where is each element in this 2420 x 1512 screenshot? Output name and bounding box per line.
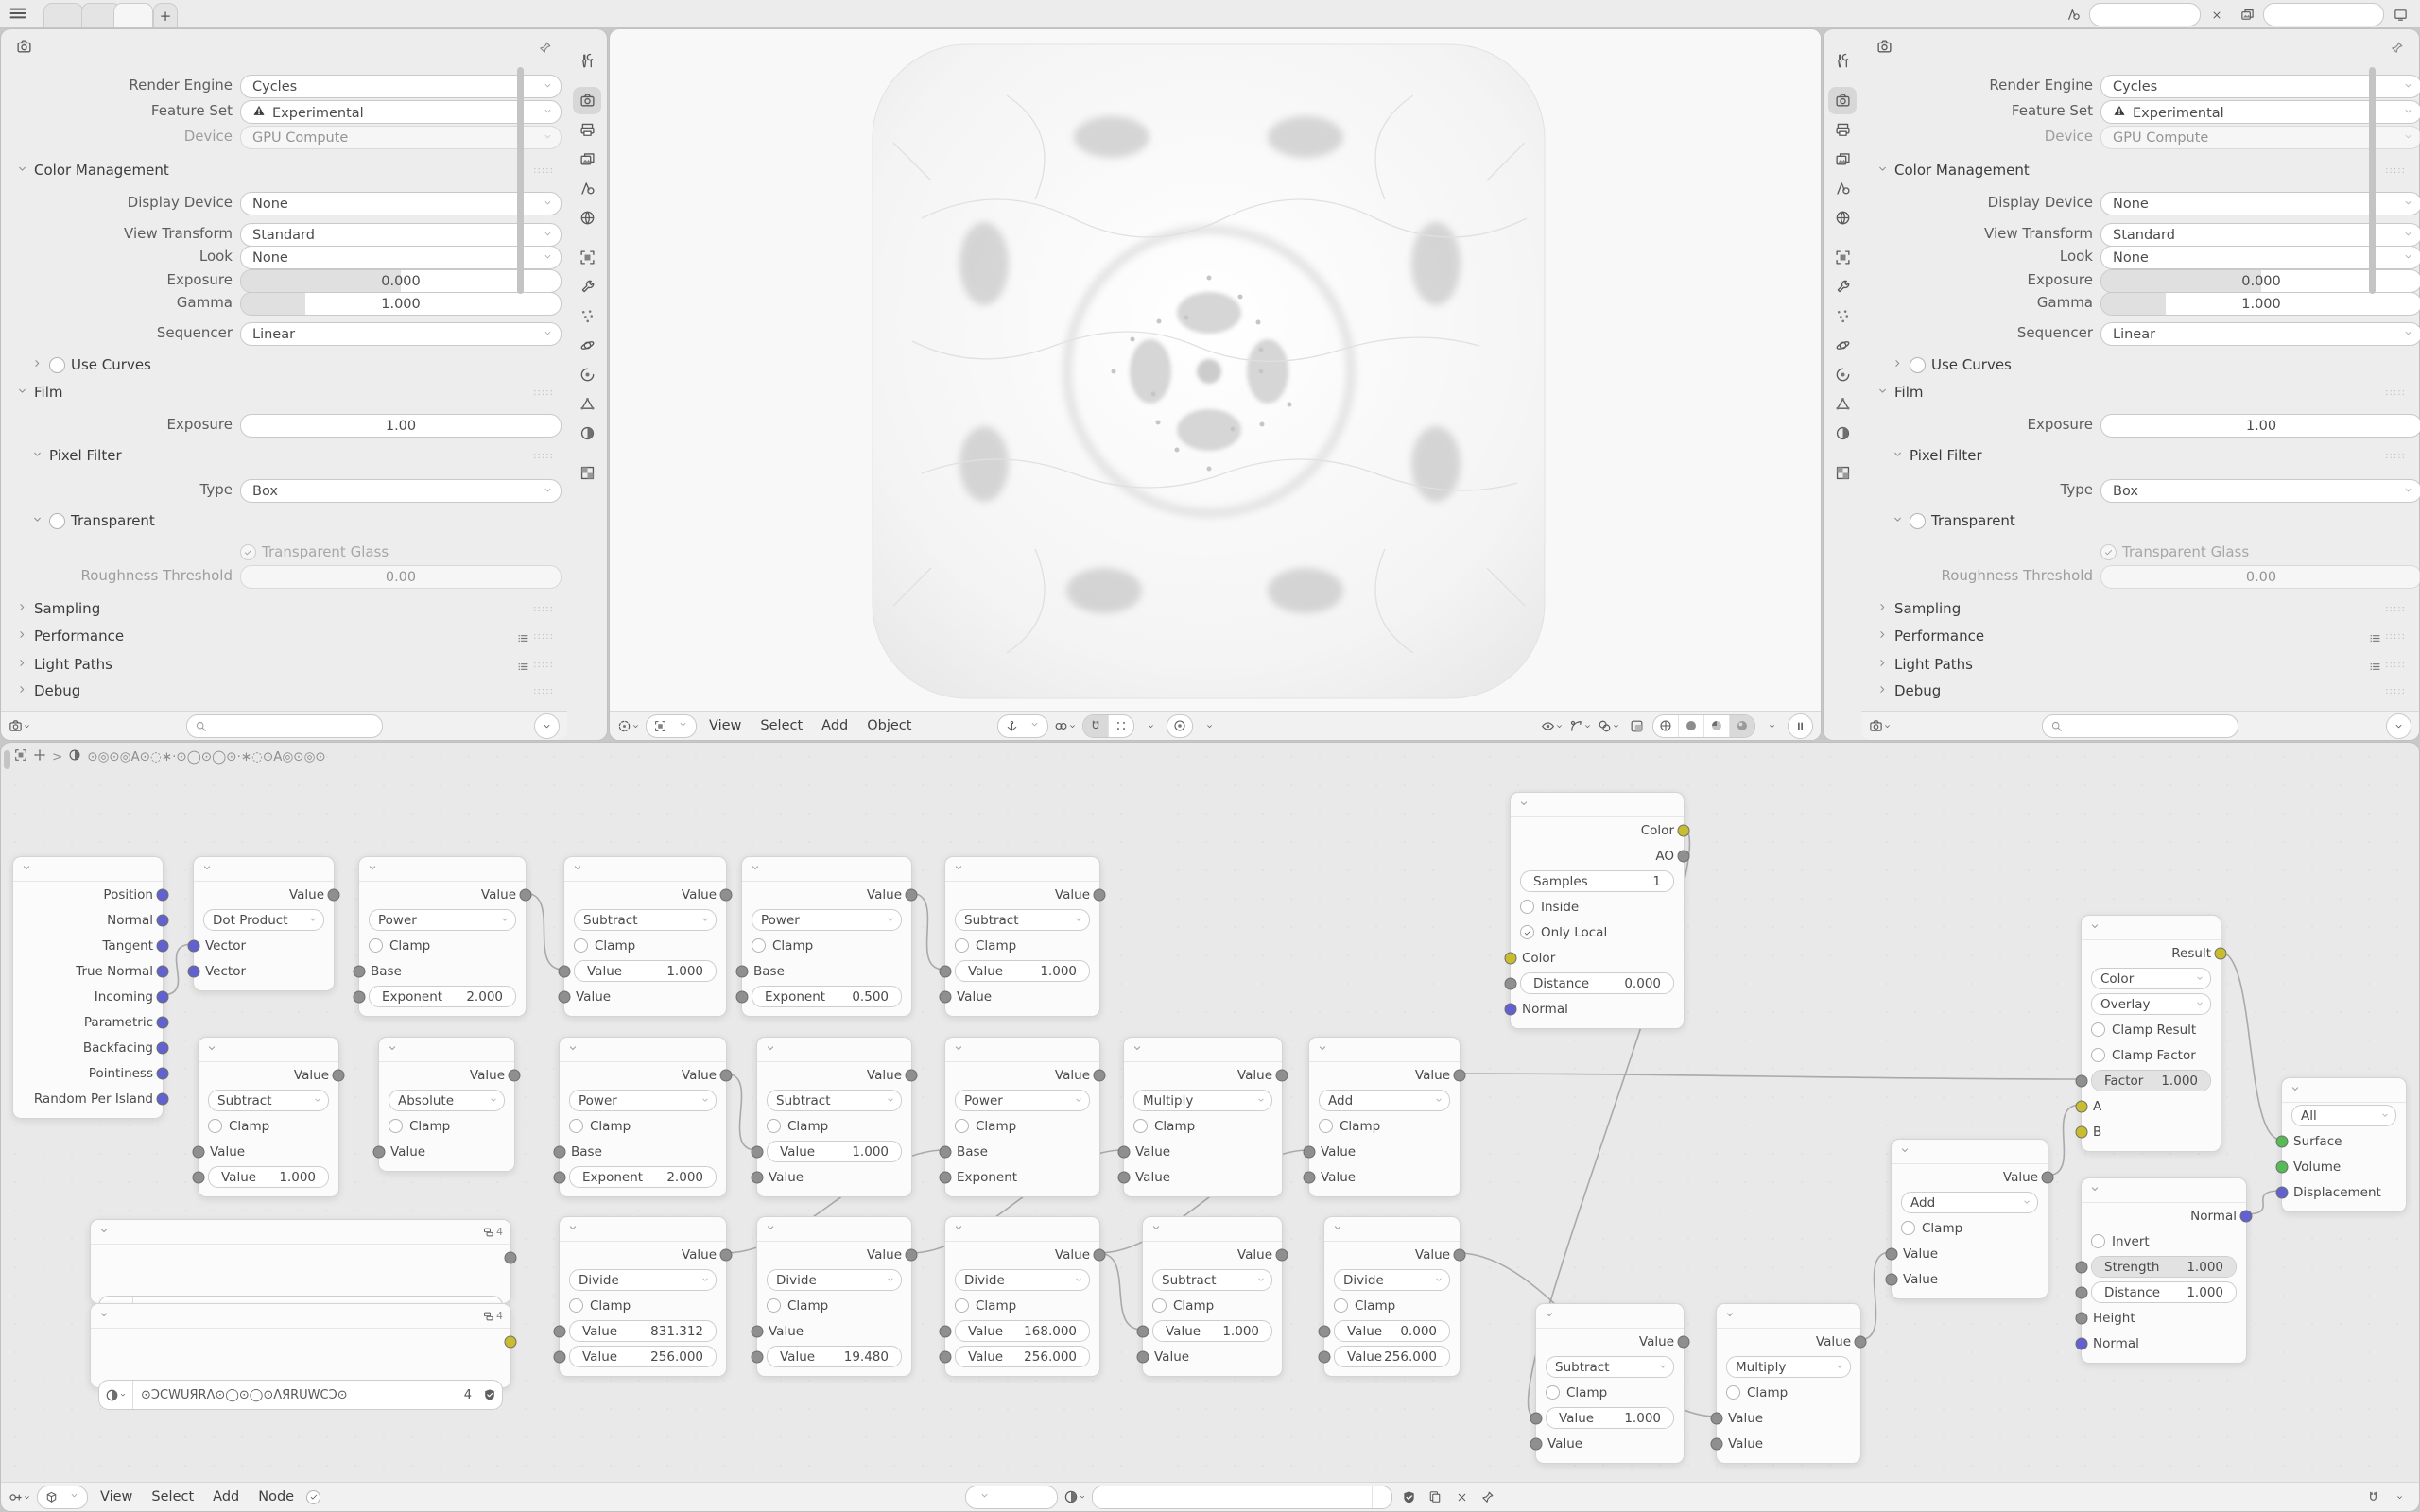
math-power-node[interactable]: ValuePowerClampBaseExponent <box>944 1037 1100 1197</box>
snap-chevron[interactable] <box>2389 1486 2410 1507</box>
exposure-field[interactable]: 0.000 <box>240 269 562 293</box>
collapse-chevron-icon[interactable] <box>953 1042 964 1057</box>
toggle-section-use-curves[interactable]: Use Curves <box>1892 356 2012 373</box>
collapse-chevron-icon[interactable] <box>1150 1222 1162 1237</box>
number-field[interactable]: Value1.000 <box>767 1141 902 1162</box>
input-socket[interactable] <box>554 1145 566 1158</box>
input-socket[interactable] <box>1137 1350 1149 1363</box>
output-socket[interactable] <box>1094 1248 1106 1261</box>
checkbox[interactable] <box>1133 1119 1148 1133</box>
output-socket[interactable] <box>2042 1171 2054 1183</box>
look-field[interactable]: None <box>240 246 562 269</box>
output-socket[interactable] <box>333 1069 345 1081</box>
use-nodes-toggle[interactable] <box>306 1490 326 1504</box>
workspace-tab[interactable] <box>43 3 83 27</box>
input-socket[interactable] <box>940 990 952 1003</box>
section-light-paths[interactable]: Light Paths <box>16 656 112 673</box>
enum-dropdown[interactable]: Power <box>752 909 902 931</box>
snap-grid-icon[interactable] <box>1109 715 1133 737</box>
input-socket[interactable] <box>2076 1125 2088 1138</box>
node-header[interactable] <box>379 1038 514 1062</box>
input-socket[interactable] <box>1319 1325 1331 1337</box>
checkbox[interactable] <box>389 1119 403 1133</box>
collapse-chevron-icon[interactable] <box>765 1042 776 1057</box>
checkbox[interactable] <box>2091 1022 2105 1037</box>
checkbox[interactable] <box>369 938 383 953</box>
input-socket[interactable] <box>736 990 749 1003</box>
enum-dropdown[interactable]: Dot Product <box>203 909 324 931</box>
material-name-field[interactable] <box>1092 1486 1392 1509</box>
view-transform-field[interactable]: Standard <box>240 223 562 247</box>
enum-dropdown[interactable]: Power <box>955 1090 1090 1111</box>
checkbox-transparent-glass[interactable]: Transparent Glass <box>240 543 389 560</box>
section-performance[interactable]: Performance <box>16 627 124 644</box>
checkbox[interactable] <box>767 1298 781 1313</box>
input-socket[interactable] <box>752 1171 764 1183</box>
math-power-node[interactable]: ValuePowerClampBaseExponent2.000 <box>358 856 527 1017</box>
output-socket[interactable] <box>1094 1069 1106 1081</box>
film-exposure-field[interactable]: 1.00 <box>2100 414 2420 438</box>
math-subtract-node[interactable]: ValueSubtractClampValue1.000Value <box>944 856 1100 1017</box>
number-field[interactable]: Value256.000 <box>569 1346 717 1367</box>
properties-tab-material[interactable] <box>573 420 601 447</box>
pause-render-button[interactable] <box>1788 713 1813 739</box>
section-debug[interactable]: Debug <box>16 682 80 699</box>
math-absolute-node[interactable]: ValueAbsoluteClampValue <box>378 1037 515 1172</box>
checkbox[interactable] <box>1319 1119 1333 1133</box>
math-subtract-node[interactable]: ValueSubtractClampValue1.000Value <box>756 1037 912 1197</box>
output-socket[interactable] <box>157 888 169 901</box>
node-header[interactable] <box>1124 1038 1282 1062</box>
input-socket[interactable] <box>1886 1273 1898 1285</box>
enum-dropdown[interactable]: Add <box>1319 1090 1450 1111</box>
section-color-management[interactable]: Color Management <box>1876 162 2030 179</box>
number-field[interactable]: Exponent2.000 <box>569 1166 717 1188</box>
input-socket[interactable] <box>554 1350 566 1363</box>
interaction-mode-icon[interactable] <box>617 715 640 736</box>
feature-set-field[interactable]: Experimental <box>240 100 562 124</box>
film-exposure-field[interactable]: 1.00 <box>240 414 562 438</box>
output-socket[interactable] <box>505 1335 517 1348</box>
input-socket[interactable] <box>752 1325 764 1337</box>
properties-tab-tool[interactable] <box>1828 47 1857 75</box>
close-icon[interactable] <box>1451 1486 1472 1507</box>
number-field[interactable]: Value1.000 <box>1546 1407 1674 1429</box>
properties-tab-object[interactable] <box>573 244 601 271</box>
output-socket[interactable] <box>520 888 532 901</box>
input-socket[interactable] <box>2076 1337 2088 1349</box>
pin-icon[interactable] <box>1478 1486 1498 1507</box>
collapse-chevron-icon[interactable] <box>1317 1042 1328 1057</box>
enum-dropdown[interactable]: Divide <box>767 1269 902 1291</box>
menu-select[interactable]: Select <box>753 718 809 733</box>
checkbox[interactable] <box>1910 513 1926 529</box>
enum-dropdown[interactable]: Subtract <box>767 1090 902 1111</box>
input-socket[interactable] <box>1505 977 1517 989</box>
input-socket[interactable] <box>2076 1286 2088 1298</box>
node-header[interactable] <box>1717 1304 1860 1329</box>
fake-user-shield-icon[interactable] <box>1398 1486 1419 1507</box>
shading-material-icon[interactable] <box>1704 715 1730 737</box>
menu-object[interactable]: Object <box>860 718 918 733</box>
roughness-threshold-field[interactable]: 0.00 <box>240 565 562 589</box>
math-subtract-node[interactable]: ValueSubtractClampValue1.000Value <box>1535 1303 1685 1464</box>
output-socket[interactable] <box>1678 850 1690 862</box>
properties-tab-viewlayer[interactable] <box>1828 146 1857 173</box>
viewport-3d[interactable]: ViewSelectAddObject <box>610 29 1821 740</box>
datablock-name[interactable]: ⊙ƆCWUЯRΛ⊙◯⊙◯⊙ΛЯRUWCƆ⊙ <box>133 1388 458 1402</box>
number-field[interactable]: Value0.000 <box>1334 1320 1450 1342</box>
collapse-chevron-icon[interactable] <box>953 862 964 877</box>
number-field[interactable]: Distance1.000 <box>2091 1281 2237 1303</box>
scrollbar[interactable] <box>517 67 524 294</box>
properties-tab-physics[interactable] <box>1828 332 1857 359</box>
section-film[interactable]: Film <box>16 384 62 401</box>
datablock-selector[interactable]: ⊙ƆCWUЯRΛ⊙◯⊙◯⊙ΛЯRUWCƆ⊙4 <box>98 1380 503 1410</box>
checkbox[interactable] <box>1520 925 1534 939</box>
properties-tab-texture[interactable] <box>1828 459 1857 487</box>
enum-dropdown[interactable]: Multiply <box>1726 1356 1851 1378</box>
checkbox[interactable] <box>767 1119 781 1133</box>
enum-dropdown[interactable]: Multiply <box>1133 1090 1272 1111</box>
input-socket[interactable] <box>736 965 749 977</box>
collapse-chevron-icon[interactable] <box>1544 1309 1555 1324</box>
properties-tab-output[interactable] <box>1828 116 1857 144</box>
shader-node-editor[interactable]: PositionNormalTangentTrue NormalIncoming… <box>1 743 2419 1511</box>
node-header[interactable] <box>199 1038 338 1062</box>
input-socket[interactable] <box>1530 1412 1543 1424</box>
search-input[interactable] <box>186 714 383 738</box>
input-socket[interactable] <box>940 1171 952 1183</box>
input-socket[interactable] <box>940 1350 952 1363</box>
checkbox[interactable] <box>1520 900 1534 914</box>
math-power-node[interactable]: ValuePowerClampBaseExponent0.500 <box>741 856 912 1017</box>
material-output-node[interactable]: AllSurfaceVolumeDisplacement <box>2281 1077 2407 1212</box>
ambient-occlusion-node[interactable]: ColorAOSamples1InsideOnly LocalColorDist… <box>1510 792 1685 1029</box>
section-light-paths[interactable]: Light Paths <box>1876 656 1973 673</box>
section-pixel-filter[interactable]: Pixel Filter <box>31 447 122 464</box>
toggle-section-use-curves[interactable]: Use Curves <box>31 356 151 373</box>
gamma-field[interactable]: 1.000 <box>240 292 562 316</box>
number-field[interactable]: Strength1.000 <box>2091 1256 2237 1278</box>
collapse-chevron-icon[interactable] <box>1332 1222 1343 1237</box>
editor-type-icon[interactable] <box>9 715 31 736</box>
add-workspace-button[interactable]: + <box>153 3 178 27</box>
input-socket[interactable] <box>1118 1171 1131 1183</box>
output-socket[interactable] <box>157 939 169 952</box>
collapse-chevron-icon[interactable] <box>953 1222 964 1237</box>
output-socket[interactable] <box>1855 1335 1867 1348</box>
node-header[interactable] <box>560 1038 726 1062</box>
output-socket[interactable] <box>157 965 169 977</box>
input-socket[interactable] <box>1711 1412 1723 1424</box>
output-socket[interactable] <box>1454 1248 1466 1261</box>
output-socket[interactable] <box>157 1016 169 1028</box>
section-performance[interactable]: Performance <box>1876 627 1984 644</box>
properties-tab-world[interactable] <box>573 204 601 232</box>
number-field[interactable]: Value1.000 <box>208 1166 329 1188</box>
properties-tab-render[interactable] <box>1828 87 1857 114</box>
menu-add[interactable]: Add <box>206 1489 246 1504</box>
checkbox[interactable] <box>208 1119 222 1133</box>
enum-dropdown[interactable]: Color <box>2091 968 2211 989</box>
checkbox[interactable] <box>569 1298 583 1313</box>
viewlayer-name-field[interactable] <box>2263 3 2384 26</box>
properties-tab-modifiers[interactable] <box>1828 273 1857 301</box>
input-socket[interactable] <box>752 1145 764 1158</box>
editor-type-icon[interactable] <box>9 1486 31 1507</box>
number-field[interactable]: Value19.480 <box>767 1346 902 1367</box>
menu-node[interactable]: Node <box>251 1489 301 1504</box>
input-socket[interactable] <box>940 1325 952 1337</box>
enum-dropdown[interactable]: Power <box>569 1090 717 1111</box>
material-icon[interactable] <box>99 1381 133 1409</box>
bump-node[interactable]: NormalInvertStrength1.000Distance1.000He… <box>2081 1177 2247 1364</box>
input-socket[interactable] <box>1711 1437 1723 1450</box>
collapse-chevron-icon[interactable] <box>367 862 378 877</box>
output-socket[interactable] <box>906 1069 918 1081</box>
number-field[interactable]: Distance0.000 <box>1520 972 1674 994</box>
math-multiply-node[interactable]: ValueMultiplyClampValueValue <box>1123 1037 1283 1197</box>
checkbox[interactable] <box>569 1119 583 1133</box>
datablock-node[interactable]: 4⊙2S⊙ИN∆ЯRΛ⊙◯⊙◯⊙ΛЯR∆NИ⊙2S⊙4 <box>90 1219 511 1304</box>
app-menu-button[interactable] <box>8 3 28 24</box>
input-socket[interactable] <box>554 1171 566 1183</box>
math-add-node[interactable]: ValueAddClampValueValue <box>1308 1037 1461 1197</box>
proportional-chevron[interactable] <box>1199 715 1219 736</box>
enum-dropdown[interactable]: Absolute <box>389 1090 505 1111</box>
section-color-management[interactable]: Color Management <box>16 162 169 179</box>
properties-tab-world[interactable] <box>1828 204 1857 232</box>
input-socket[interactable] <box>373 1145 386 1158</box>
input-socket[interactable] <box>2076 1261 2088 1273</box>
math-add-node[interactable]: ValueAddClampValueValue <box>1891 1139 2048 1299</box>
checkbox[interactable] <box>1334 1298 1348 1313</box>
node-header[interactable] <box>742 857 911 882</box>
node-header[interactable] <box>1309 1038 1460 1062</box>
shading-solid-icon[interactable] <box>1679 715 1704 737</box>
enum-dropdown[interactable]: Subtract <box>955 909 1090 931</box>
mix-color-node[interactable]: ResultColorOverlayClamp ResultClamp Fact… <box>2081 915 2221 1152</box>
slot-dropdown[interactable] <box>965 1486 1058 1509</box>
checkbox[interactable] <box>955 1119 969 1133</box>
input-socket[interactable] <box>2276 1135 2289 1147</box>
output-socket[interactable] <box>2240 1210 2253 1222</box>
collapse-chevron-icon[interactable] <box>201 862 213 877</box>
properties-tab-texture[interactable] <box>573 459 601 487</box>
output-socket[interactable] <box>157 1041 169 1054</box>
input-socket[interactable] <box>354 990 366 1003</box>
number-field[interactable]: Value1.000 <box>574 960 717 982</box>
math-divide-node[interactable]: ValueDivideClampValueValue19.480 <box>756 1216 912 1377</box>
checkbox[interactable] <box>1546 1385 1560 1400</box>
checkbox[interactable] <box>240 544 256 560</box>
properties-tab-material[interactable] <box>1828 420 1857 447</box>
checkbox[interactable] <box>2100 544 2117 560</box>
properties-tab-constraints[interactable] <box>1828 361 1857 388</box>
material-icon[interactable] <box>1063 1486 1086 1507</box>
node-header[interactable] <box>1892 1140 2048 1164</box>
input-socket[interactable] <box>940 1145 952 1158</box>
math-divide-node[interactable]: ValueDivideClampValue168.000Value256.000 <box>944 1216 1100 1377</box>
node-header[interactable] <box>2082 1178 2246 1203</box>
enum-dropdown[interactable]: Divide <box>1334 1269 1450 1291</box>
pin-icon[interactable] <box>2387 37 2408 58</box>
enum-dropdown[interactable]: Divide <box>955 1269 1090 1291</box>
number-field[interactable]: Factor1.000 <box>2091 1070 2211 1091</box>
number-field[interactable]: Value168.000 <box>955 1320 1090 1342</box>
output-socket[interactable] <box>157 990 169 1003</box>
node-header[interactable] <box>359 857 526 882</box>
snap-target-dropdown[interactable] <box>1054 715 1077 736</box>
input-socket[interactable] <box>2076 1074 2088 1087</box>
input-socket[interactable] <box>1319 1350 1331 1363</box>
section-film[interactable]: Film <box>1876 384 1923 401</box>
input-socket[interactable] <box>1505 1003 1517 1015</box>
node-header[interactable] <box>194 857 334 882</box>
proportional-icon[interactable] <box>1167 715 1192 737</box>
section-pixel-filter[interactable]: Pixel Filter <box>1892 447 1982 464</box>
output-socket[interactable] <box>1276 1069 1288 1081</box>
checkbox[interactable] <box>955 1298 969 1313</box>
pixel-filter-type-field[interactable]: Box <box>240 479 562 503</box>
users-count[interactable]: 4 <box>458 1381 477 1409</box>
output-socket[interactable] <box>157 1067 169 1079</box>
input-socket[interactable] <box>1886 1247 1898 1260</box>
input-socket[interactable] <box>2076 1100 2088 1112</box>
output-socket[interactable] <box>1678 824 1690 836</box>
node-header[interactable] <box>945 1217 1099 1242</box>
number-field[interactable]: Value1.000 <box>955 960 1090 982</box>
collapse-chevron-icon[interactable] <box>2089 920 2100 936</box>
number-field[interactable]: Value256.000 <box>955 1346 1090 1367</box>
output-socket[interactable] <box>906 1248 918 1261</box>
input-socket[interactable] <box>752 1350 764 1363</box>
output-socket[interactable] <box>1276 1248 1288 1261</box>
workspace-tab[interactable] <box>113 3 153 27</box>
math-subtract-node[interactable]: ValueSubtractClampValue1.000Value <box>1142 1216 1283 1377</box>
input-socket[interactable] <box>554 1325 566 1337</box>
xray-toggle[interactable] <box>1626 715 1647 736</box>
options-chevron-button[interactable] <box>534 713 560 739</box>
visibility-dropdown[interactable] <box>1541 715 1564 736</box>
enum-dropdown[interactable]: Subtract <box>1152 1269 1272 1291</box>
enum-dropdown[interactable]: All <box>2291 1105 2396 1126</box>
menu-view[interactable]: View <box>702 718 748 733</box>
properties-tab-physics[interactable] <box>573 332 601 359</box>
node-header[interactable] <box>945 1038 1099 1062</box>
properties-tab-scene[interactable] <box>1828 175 1857 202</box>
math-power-node[interactable]: ValuePowerClampBaseExponent2.000 <box>559 1037 727 1197</box>
pixel-filter-type-field[interactable]: Box <box>2100 479 2420 503</box>
checkbox[interactable] <box>2091 1048 2105 1062</box>
input-socket[interactable] <box>1304 1171 1316 1183</box>
math-multiply-node[interactable]: ValueMultiplyClampValueValue <box>1716 1303 1861 1464</box>
checkbox-transparent-glass[interactable]: Transparent Glass <box>2100 543 2249 560</box>
input-socket[interactable] <box>1137 1325 1149 1337</box>
enum-dropdown[interactable]: Subtract <box>574 909 717 931</box>
gamma-field[interactable]: 1.000 <box>2100 292 2420 316</box>
output-socket[interactable] <box>906 888 918 901</box>
node-header[interactable] <box>2282 1078 2406 1103</box>
collapse-chevron-icon[interactable] <box>206 1042 217 1057</box>
scene-name-field[interactable] <box>2089 3 2201 26</box>
number-field[interactable]: Samples1 <box>1520 870 1674 892</box>
checkbox[interactable] <box>1910 357 1926 373</box>
input-socket[interactable] <box>193 1145 205 1158</box>
section-debug[interactable]: Debug <box>1876 682 1941 699</box>
node-header[interactable] <box>757 1038 911 1062</box>
enum-dropdown[interactable]: Subtract <box>208 1090 329 1111</box>
scrollbar[interactable] <box>4 750 10 769</box>
input-socket[interactable] <box>1530 1437 1543 1450</box>
geometry-node[interactable]: PositionNormalTangentTrue NormalIncoming… <box>12 856 164 1119</box>
properties-tab-particles[interactable] <box>1828 302 1857 330</box>
properties-tab-object[interactable] <box>1828 244 1857 271</box>
menu-add[interactable]: Add <box>815 718 855 733</box>
input-socket[interactable] <box>1505 952 1517 964</box>
output-socket[interactable] <box>157 914 169 926</box>
collapse-chevron-icon[interactable] <box>21 862 32 877</box>
properties-tab-output[interactable] <box>573 116 601 144</box>
material-users-count[interactable] <box>1372 1486 1384 1508</box>
input-socket[interactable] <box>1304 1145 1316 1158</box>
output-socket[interactable] <box>509 1069 521 1081</box>
scrollbar[interactable] <box>2369 67 2376 294</box>
shading-rendered-icon[interactable] <box>1730 715 1754 737</box>
number-field[interactable]: Value1.000 <box>1152 1320 1272 1342</box>
number-field[interactable]: Exponent2.000 <box>369 986 516 1007</box>
properties-tab-render[interactable] <box>573 87 601 114</box>
section-sampling[interactable]: Sampling <box>1876 600 1961 617</box>
node-header[interactable] <box>1511 793 1684 817</box>
output-socket[interactable] <box>720 888 733 901</box>
node-header[interactable] <box>2082 916 2221 940</box>
node-header[interactable] <box>560 1217 726 1242</box>
output-socket[interactable] <box>328 888 340 901</box>
magnet-icon[interactable] <box>1083 715 1109 737</box>
node-header[interactable]: 4 <box>91 1304 510 1329</box>
node-header[interactable] <box>1143 1217 1282 1242</box>
collapse-chevron-icon[interactable] <box>567 1222 579 1237</box>
enum-dropdown[interactable]: Power <box>369 909 516 931</box>
output-socket[interactable] <box>720 1248 733 1261</box>
checkbox[interactable] <box>49 357 65 373</box>
input-socket[interactable] <box>2276 1160 2289 1173</box>
vector-math-node[interactable]: ValueDot ProductVectorVector <box>193 856 335 991</box>
search-input[interactable] <box>2042 714 2238 738</box>
output-socket[interactable] <box>1094 888 1106 901</box>
properties-tab-data[interactable] <box>1828 390 1857 418</box>
output-socket[interactable] <box>2215 947 2227 959</box>
checkbox[interactable] <box>955 938 969 953</box>
properties-tab-particles[interactable] <box>573 302 601 330</box>
collapse-chevron-icon[interactable] <box>2089 1183 2100 1198</box>
collapse-chevron-icon[interactable] <box>765 1222 776 1237</box>
math-subtract-node[interactable]: ValueSubtractClampValue1.000Value <box>563 856 727 1017</box>
sequencer-field[interactable]: Linear <box>240 322 562 346</box>
display-device-field[interactable]: None <box>240 192 562 215</box>
toggle-section-transparent[interactable]: Transparent <box>1892 512 2015 529</box>
checkbox[interactable] <box>574 938 588 953</box>
checkbox[interactable] <box>1726 1385 1740 1400</box>
render-engine-field[interactable]: Cycles <box>240 75 562 98</box>
copy-icon[interactable] <box>1425 1486 1445 1507</box>
number-field[interactable]: Exponent0.500 <box>752 986 902 1007</box>
editor-type-icon[interactable] <box>1869 715 1892 736</box>
properties-tab-modifiers[interactable] <box>573 273 601 301</box>
collapse-chevron-icon[interactable] <box>572 862 583 877</box>
